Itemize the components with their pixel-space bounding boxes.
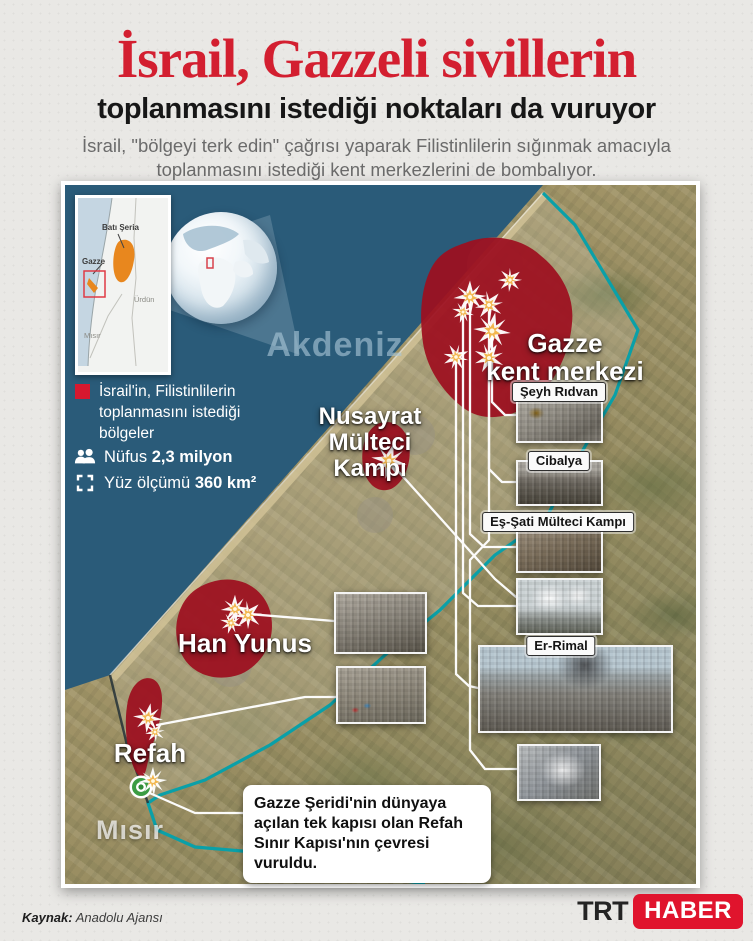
inset-jordan-label: Ürdün [134, 295, 154, 304]
infographic: İsrail, Gazzeli sivillerin toplanmasını … [0, 0, 753, 941]
inset-gaza-label: Gazze [82, 257, 106, 266]
source-label: Kaynak: [22, 910, 73, 925]
logo-trt-text: TRT [577, 896, 628, 927]
globe-locator [165, 212, 277, 324]
population-icon [74, 447, 96, 467]
area-expand-icon [74, 473, 96, 493]
rafah-crossing-callout: Gazze Şeridi'nin dünyaya açılan tek kapı… [243, 785, 491, 883]
photo-rafah-ruins [336, 666, 426, 724]
legend-red-square-icon [75, 384, 90, 399]
photo-smoke-cloud [517, 744, 601, 801]
sea-label: Akdeniz [235, 326, 435, 365]
photo-label-er-rimal: Er-Rimal [526, 636, 595, 656]
area-stat: Yüz ölçümü 360 km² [74, 473, 256, 493]
egypt-label: Mısır [70, 815, 190, 846]
page-description: İsrail, "bölgeyi terk edin" çağrısı yapa… [56, 134, 697, 182]
source-credit: Kaynak: Anadolu Ajansı [22, 910, 163, 925]
nusayrat-label: Nusayrat Mülteci Kampı [290, 404, 450, 482]
source-name: Anadolu Ajansı [76, 910, 163, 925]
locator-inset-map: Batı Şeria Gazze Ürdün Mısır [75, 195, 171, 375]
photo-label-seyh-ridvan: Şeyh Rıdvan [512, 382, 606, 402]
photo-khan-yunis-ruins [334, 592, 427, 654]
globe-africa-landmass [198, 257, 235, 307]
logo-haber-badge: HABER [633, 894, 743, 929]
population-stat: Nüfus 2,3 milyon [74, 447, 232, 467]
trt-haber-logo: TRT HABER [577, 894, 743, 929]
inset-egypt-label: Mısır [84, 331, 101, 340]
page-subtitle: toplanmasını istediği noktaları da vuruy… [0, 93, 753, 126]
inset-west-bank-shape [113, 240, 134, 283]
gaza-city-label: Gazze kent merkezi [480, 329, 650, 385]
photo-er-rimal [478, 645, 673, 733]
rafah-label: Refah [95, 738, 205, 769]
photo-label-es-sati: Eş-Şati Mülteci Kampı [482, 512, 634, 532]
legend: İsrail'in, Filistinlilerin toplanmasını … [75, 381, 260, 444]
khan-yunis-label: Han Yunus [165, 628, 325, 659]
photo-smoke-plumes [516, 578, 603, 635]
page-title: İsrail, Gazzeli sivillerin [0, 30, 753, 88]
inset-west-bank-label: Batı Şeria [102, 223, 139, 232]
area-text: Yüz ölçümü 360 km² [104, 474, 256, 493]
gaza-satellite-map: Batı Şeria Gazze Ürdün Mısır İsrail'in, … [61, 181, 700, 888]
photo-label-cibalya: Cibalya [528, 451, 590, 471]
population-text: Nüfus 2,3 milyon [104, 448, 232, 467]
legend-note: İsrail'in, Filistinlilerin toplanmasını … [99, 381, 260, 444]
globe-europe-landmass [183, 226, 239, 251]
